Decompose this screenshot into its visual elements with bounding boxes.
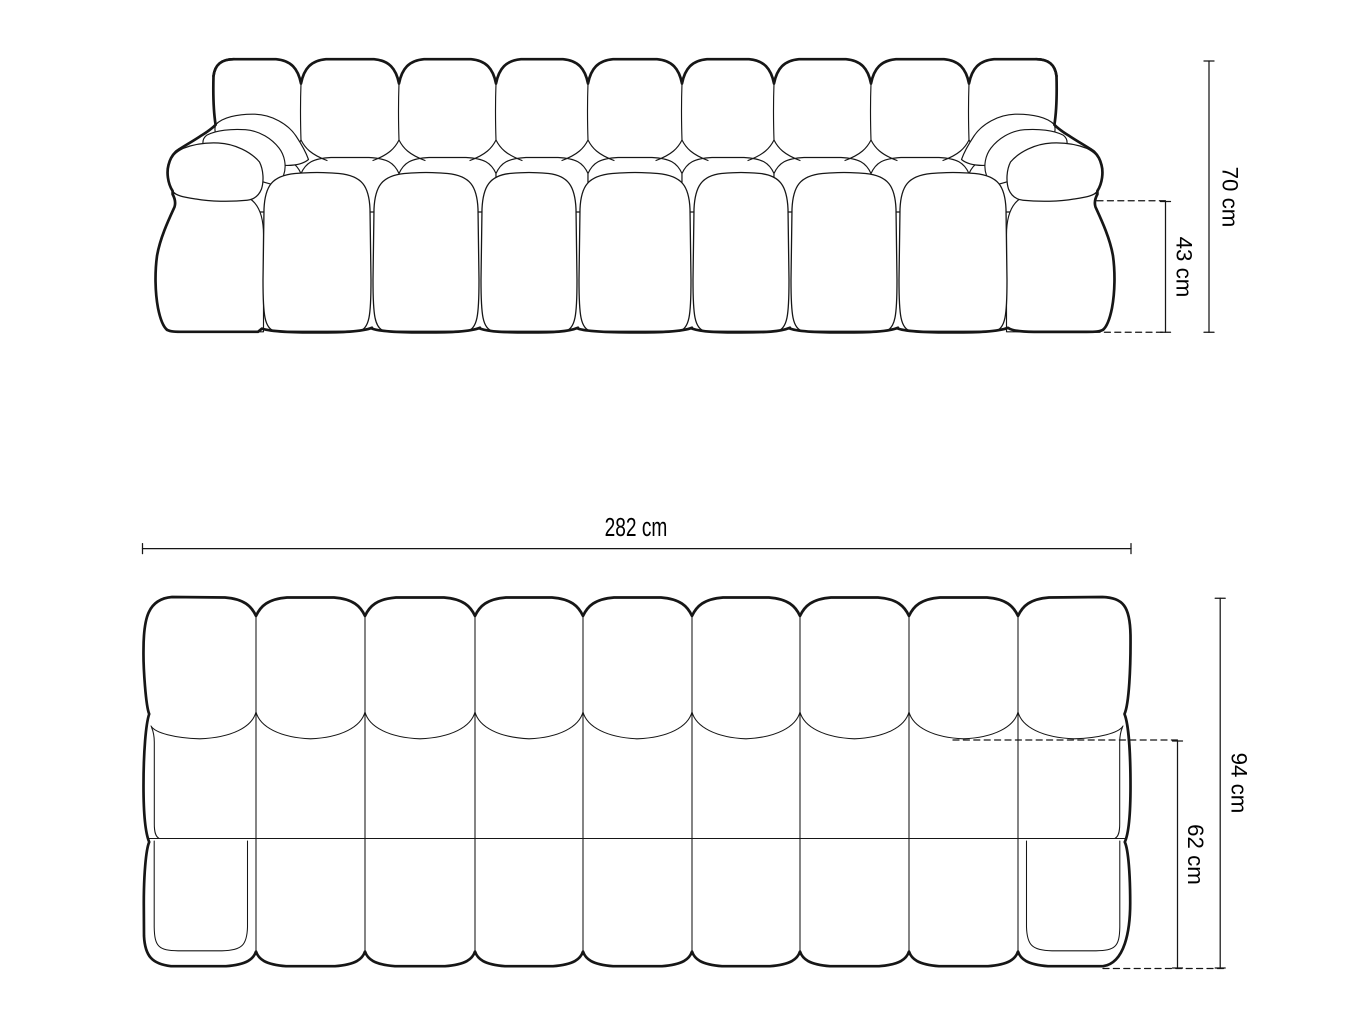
svg-text:70 cm: 70 cm: [1218, 167, 1243, 228]
svg-text:94 cm: 94 cm: [1227, 753, 1252, 814]
svg-text:43 cm: 43 cm: [1172, 237, 1197, 298]
svg-text:62 cm: 62 cm: [1183, 824, 1208, 885]
svg-text:282 cm: 282 cm: [605, 513, 668, 541]
